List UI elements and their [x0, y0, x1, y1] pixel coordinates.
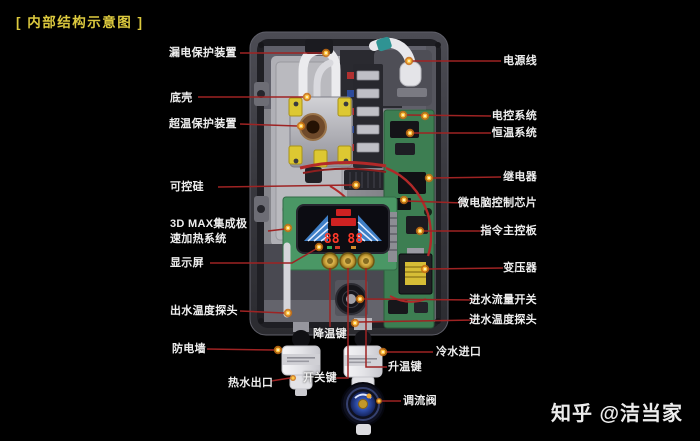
label-outlet-temp-probe: 出水温度探头 [170, 304, 238, 319]
relay [398, 172, 426, 194]
water-heater-illustration: 88 88 [0, 0, 700, 441]
relay-block [390, 121, 419, 138]
label-mcu-chip: 微电脑控制芯片 [458, 196, 537, 211]
label-thermostat-system: 恒温系统 [492, 126, 537, 141]
label-hot-water-outlet: 热水出口 [228, 376, 273, 391]
heatsink [344, 170, 386, 190]
label-relay: 继电器 [503, 170, 537, 185]
label-inlet-flow-switch: 进水流量开关 [469, 293, 537, 308]
label-cold-water-inlet: 冷水进口 [436, 345, 481, 360]
label-flow-valve: 调流阀 [403, 394, 437, 409]
label-power-key: 开关键 [303, 371, 337, 386]
label-heating-system: 3D MAX集成极 速加热系统 [170, 217, 247, 247]
label-power-cord: 电源线 [503, 54, 537, 69]
label-cool-key: 降温键 [313, 327, 347, 342]
cool-button [322, 253, 338, 269]
label-bottom-shell: 底壳 [170, 91, 193, 106]
flow-valve-dial [342, 383, 384, 425]
display-digits: 88 88 [324, 232, 363, 247]
heat-button [358, 253, 374, 269]
label-heat-key: 升温键 [388, 360, 422, 375]
label-main-control-board: 指令主控板 [481, 224, 538, 239]
label-heating-system-line2: 速加热系统 [170, 233, 227, 245]
diagram-title: [ 内部结构示意图 ] [16, 11, 144, 31]
label-display-screen: 显示屏 [170, 256, 204, 271]
label-anti-electric-wall: 防电墙 [172, 342, 206, 357]
zhihu-watermark: 知乎 @洁当家 [551, 397, 683, 426]
label-overheat-protection-device: 超温保护装置 [169, 117, 237, 132]
label-transformer: 变压器 [503, 261, 537, 276]
power-button [340, 253, 356, 269]
label-electric-control-system: 电控系统 [492, 109, 537, 124]
label-inlet-temp-probe: 进水温度探头 [469, 313, 537, 328]
display-screen: 88 88 [297, 205, 389, 253]
diagram-canvas: 88 88 [0, 0, 700, 441]
label-leakage-protection-device: 漏电保护装置 [169, 46, 237, 61]
label-thyristor: 可控硅 [170, 180, 204, 195]
label-heating-system-line1: 3D MAX集成极 [170, 218, 247, 230]
